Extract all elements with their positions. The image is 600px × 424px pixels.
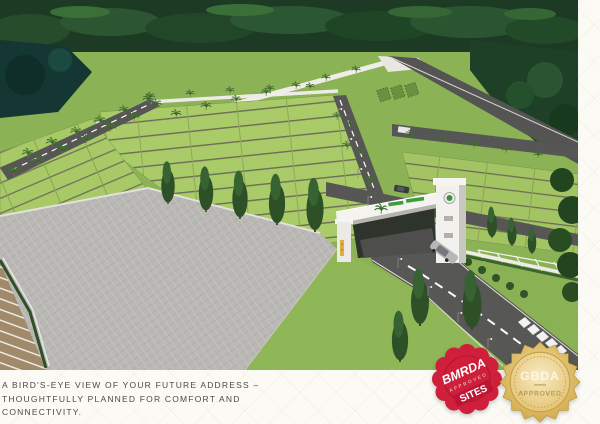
badge-bmrda: BMRDA APPROVED SITES — [429, 343, 505, 419]
flower-planter — [340, 240, 344, 256]
layout-render — [0, 0, 578, 370]
caption-line: THOUGHTFULLY PLANNED FOR COMFORT AND — [2, 393, 332, 407]
caption-line: CONNECTIVITY. — [2, 406, 332, 420]
badge-gbda: GBDA APPROVED — [498, 340, 582, 424]
caption-line: A BIRD'S-EYE VIEW OF YOUR FUTURE ADDRESS… — [2, 379, 332, 393]
brochure-page: A BIRD'S-EYE VIEW OF YOUR FUTURE ADDRESS… — [0, 0, 600, 424]
caption: A BIRD'S-EYE VIEW OF YOUR FUTURE ADDRESS… — [2, 379, 332, 420]
badge-gbda-title: GBDA — [520, 369, 560, 383]
badge-gbda-subtitle: APPROVED — [518, 391, 561, 398]
